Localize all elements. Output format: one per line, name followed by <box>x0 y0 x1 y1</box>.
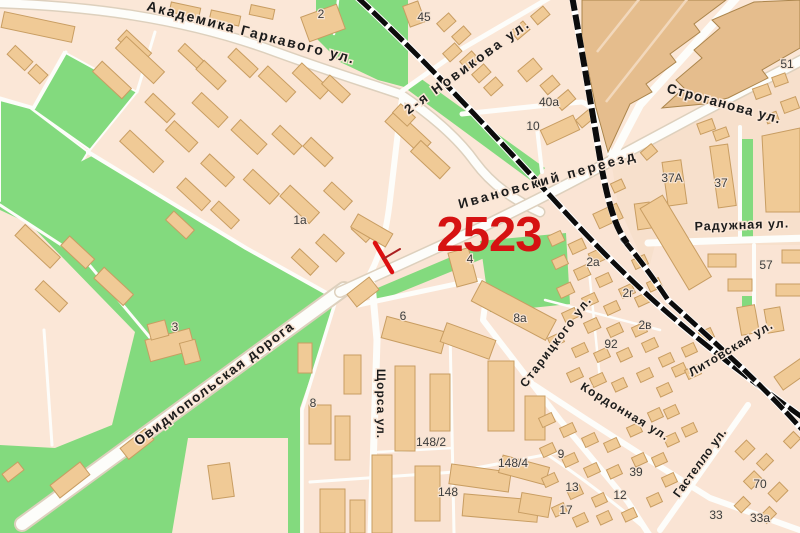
svg-text:2: 2 <box>318 7 325 21</box>
svg-text:12: 12 <box>613 488 627 502</box>
svg-text:148/2: 148/2 <box>416 435 446 449</box>
svg-text:92: 92 <box>604 337 618 351</box>
svg-text:9: 9 <box>558 447 565 461</box>
svg-text:2523: 2523 <box>436 208 541 262</box>
svg-text:17: 17 <box>559 503 573 517</box>
svg-text:37: 37 <box>714 176 728 190</box>
svg-text:51: 51 <box>780 57 794 71</box>
svg-text:45: 45 <box>417 10 431 24</box>
svg-text:33а: 33а <box>750 511 770 525</box>
svg-text:6: 6 <box>400 309 407 323</box>
svg-text:13: 13 <box>565 480 579 494</box>
svg-text:8а: 8а <box>513 311 527 325</box>
svg-text:3: 3 <box>172 320 179 334</box>
svg-text:8: 8 <box>310 396 317 410</box>
svg-text:39: 39 <box>629 465 643 479</box>
svg-text:10: 10 <box>526 119 540 133</box>
svg-text:33: 33 <box>709 508 723 522</box>
svg-text:37А: 37А <box>661 171 682 185</box>
svg-text:70: 70 <box>753 477 767 491</box>
svg-text:57: 57 <box>759 258 773 272</box>
svg-text:148: 148 <box>438 485 458 499</box>
svg-text:Щорса ул.: Щорса ул. <box>374 369 388 439</box>
svg-text:40а: 40а <box>539 95 559 109</box>
svg-text:2а: 2а <box>586 255 600 269</box>
svg-text:148/4: 148/4 <box>498 456 528 470</box>
svg-text:2г: 2г <box>622 286 634 300</box>
svg-text:1а: 1а <box>293 213 307 227</box>
svg-text:2в: 2в <box>638 318 651 332</box>
